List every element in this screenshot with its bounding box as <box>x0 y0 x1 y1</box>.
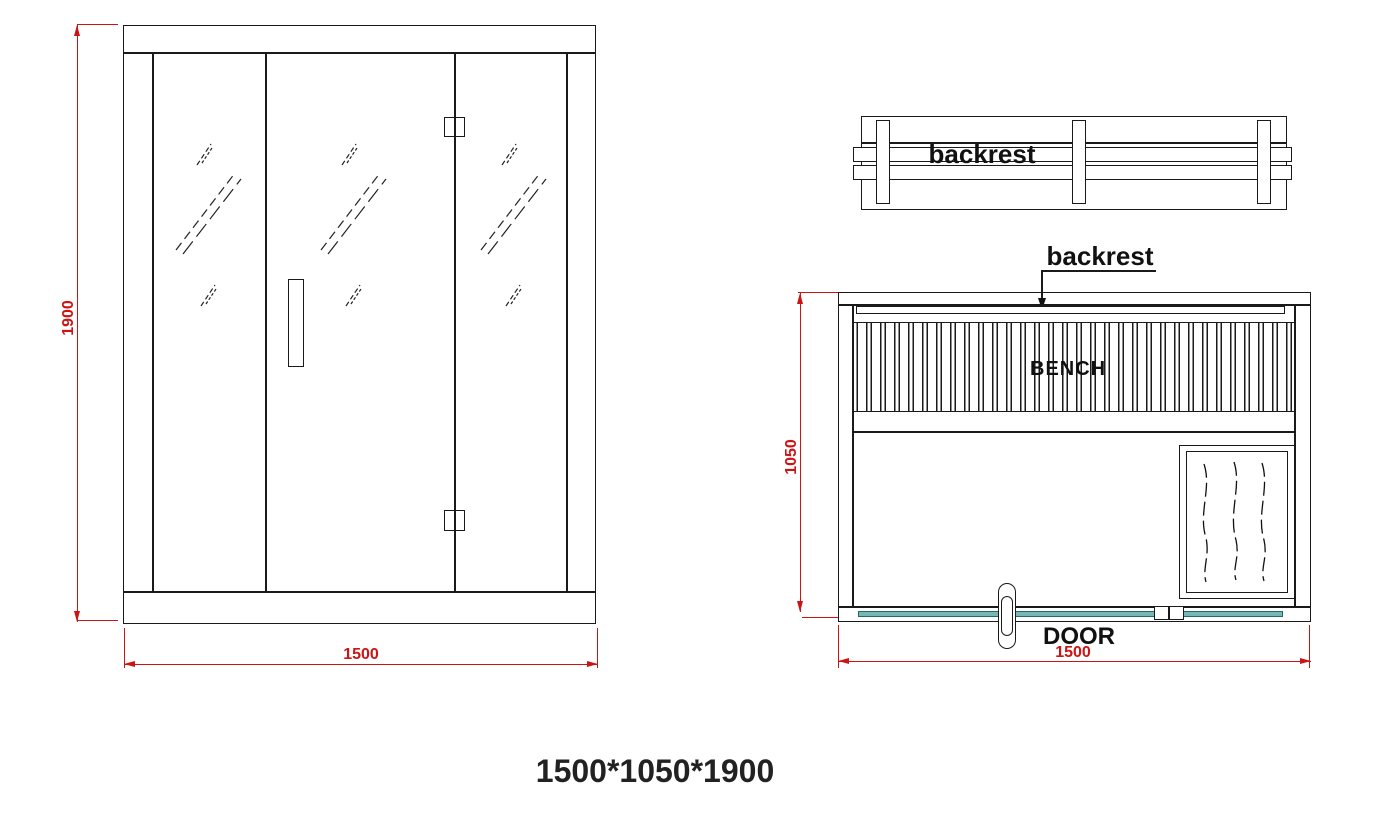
glass-streaks-right <box>480 140 550 310</box>
dim-label-depth: 1050 <box>784 427 800 487</box>
glass-streaks-center <box>320 140 390 310</box>
door-handle-plan-inner <box>1001 596 1013 636</box>
bench-label: BENCH <box>1030 358 1106 381</box>
dim-line-horizontal <box>124 664 598 665</box>
size-label: 1500*1050*1900 <box>490 753 820 790</box>
glass-streaks-left <box>175 140 245 310</box>
dim-extension-line <box>77 24 118 25</box>
glass-door-line <box>858 611 1283 617</box>
dim-arrow-left <box>124 661 135 667</box>
front-panel-divider <box>265 52 267 592</box>
dim-arrow-right <box>1300 658 1311 664</box>
door-latch-divider <box>1168 607 1170 619</box>
dim-extension-line <box>77 620 118 621</box>
front-header-line <box>123 52 596 54</box>
front-panel-divider <box>566 52 568 592</box>
front-panel-divider <box>152 52 154 592</box>
door-handle-front <box>288 279 304 367</box>
heater-wave-lines <box>1190 458 1285 586</box>
plan-backrest-strip <box>856 306 1285 314</box>
drawing-sheet: 1900 1500 backrest backrest BENCH <box>0 0 1378 822</box>
door-hinge-top <box>444 117 465 137</box>
dim-extension-line <box>798 292 838 293</box>
backrest-post <box>1257 120 1271 204</box>
bench-front-edge-line <box>852 431 1295 433</box>
dim-arrow-right <box>587 661 598 667</box>
dim-line-vertical <box>800 293 801 612</box>
dim-arrow-left <box>838 658 849 664</box>
dim-arrow-down <box>74 611 80 622</box>
backrest-callout-label: backrest <box>1035 241 1165 272</box>
dim-label-plan-width: 1500 <box>1043 645 1103 661</box>
dim-arrow-up <box>74 25 80 36</box>
dim-extension-line <box>802 617 838 618</box>
dim-label-height: 1900 <box>61 288 77 348</box>
callout-leader-horizontal <box>1041 270 1156 272</box>
dim-line-horizontal <box>838 661 1311 662</box>
plan-bottom-wall-line <box>838 606 1311 608</box>
door-hinge-bottom <box>444 510 465 531</box>
front-outline <box>123 25 596 624</box>
dim-arrow-down <box>797 601 803 612</box>
dim-line-vertical <box>77 25 78 622</box>
backrest-post <box>876 120 890 204</box>
dim-label-front-width: 1500 <box>331 647 391 663</box>
front-base-line <box>123 591 596 593</box>
dim-arrow-up <box>797 293 803 304</box>
backrest-detail-label: backrest <box>908 139 1056 170</box>
backrest-post <box>1072 120 1086 204</box>
